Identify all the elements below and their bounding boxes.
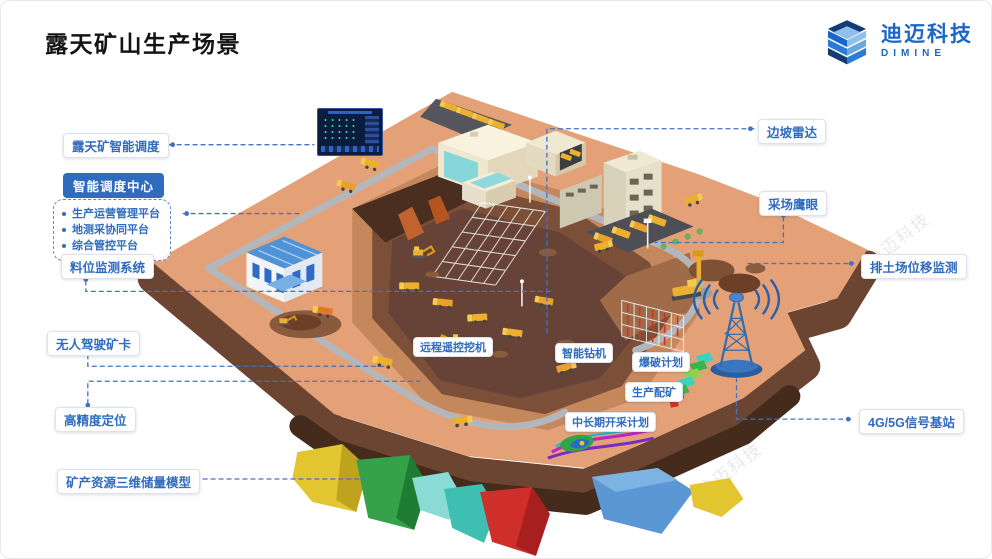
- callout-material-level: 料位监测系统: [61, 254, 154, 279]
- callout-eagle-eye: 采场鹰眼: [759, 191, 827, 216]
- callout-high-precision: 高精度定位: [55, 407, 136, 432]
- callout-ore-blending: 生产配矿: [625, 382, 683, 402]
- platform-item: 地测采协同平台: [62, 222, 160, 238]
- platform-item: 生产运营管理平台: [62, 206, 160, 222]
- callout-slope-radar: 边坡雷达: [758, 119, 826, 144]
- callout-base-station: 4G/5G信号基站: [859, 409, 964, 434]
- callout-remote-excavator: 远程遥控挖机: [413, 337, 493, 357]
- bullet-icon: [62, 212, 66, 216]
- bullet-icon: [62, 244, 66, 248]
- bullet-icon: [62, 228, 66, 232]
- callout-open-pit-dispatch: 露天矿智能调度: [63, 133, 169, 158]
- callout-blast-plan: 爆破计划: [632, 352, 690, 372]
- platform-item: 综合管控平台: [62, 238, 160, 254]
- callout-resource-model: 矿产资源三维储量模型: [57, 469, 200, 494]
- callout-smart-drill: 智能钻机: [555, 343, 613, 363]
- callout-unmanned-truck: 无人驾驶矿卡: [47, 331, 140, 356]
- dispatch-center-title: 智能调度中心: [63, 173, 164, 198]
- callout-mining-plan: 中长期开采计划: [565, 412, 656, 432]
- dispatch-dashboard-screen: [317, 108, 383, 156]
- callout-dump-displacement: 排土场位移监测: [861, 254, 967, 279]
- dispatch-center-platforms: 生产运营管理平台 地测采协同平台 综合管控平台: [53, 199, 171, 261]
- slide: 露天矿山生产场景 迪迈科技 迪迈科技 迪迈科技 迪迈科技 迪迈科技 DIMINE: [0, 0, 992, 559]
